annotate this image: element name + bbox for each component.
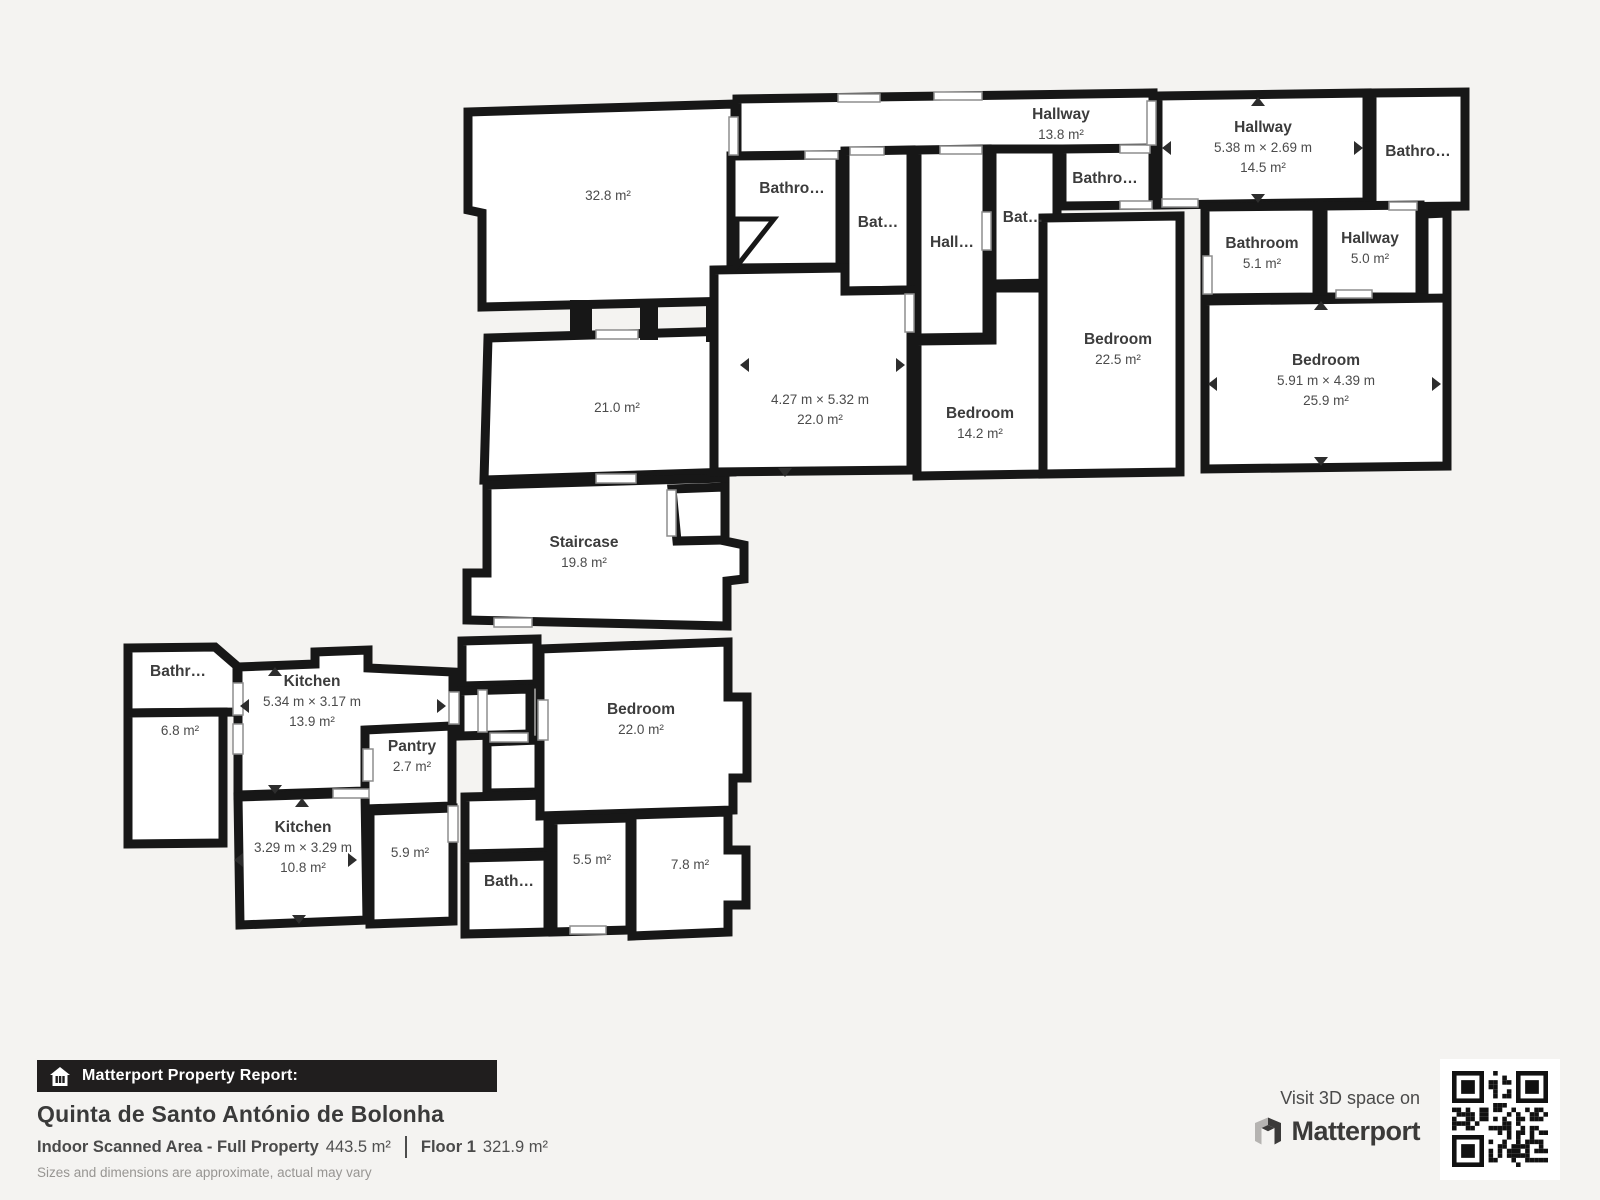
room-label-5-9: 5.9 m² [391,843,429,863]
area-info-line: Indoor Scanned Area - Full Property 443.… [37,1136,548,1158]
scanned-area-value: 443.5 m² [326,1138,391,1157]
property-title: Quinta de Santo António de Bolonha [37,1101,444,1128]
room-label-bathroom-3: Bat… [1003,208,1043,228]
dim-arrow-up-icon [1251,97,1265,106]
room-shape-connector-2 [460,689,530,736]
room-shape-5-5 [553,818,630,932]
qr-code [1440,1059,1560,1180]
matterport-brand-row: Matterport [1020,1115,1420,1147]
wall-stub [706,302,718,342]
dim-arrow-right-icon [437,699,446,713]
room-label-6-8: 6.8 m² [161,721,199,741]
room-label-21-0: 21.0 m² [594,398,640,418]
room-label-22-0: 4.27 m × 5.32 m 22.0 m² [771,390,869,430]
room-shape-connector-1 [462,639,537,686]
floor-label: Floor 1 [421,1138,476,1157]
dim-arrow-right-icon [896,358,905,372]
dim-arrow-down-icon [778,468,792,477]
visit-3d-text: Visit 3D space on [1020,1088,1420,1109]
room-label-bedroom-25-9: Bedroom 5.91 m × 4.39 m 25.9 m² [1277,351,1375,411]
wall-stub [570,300,592,338]
room-label-bathroom-5-1: Bathroom 5.1 m² [1225,234,1298,274]
room-label-kitchen-10-8: Kitchen 3.29 m × 3.29 m 10.8 m² [254,818,352,878]
dim-arrow-right-icon [1432,377,1441,391]
dim-arrow-left-icon [1208,377,1217,391]
room-label-bathroom-top-right: Bathro… [1385,142,1450,162]
qr-code-image [1452,1071,1548,1167]
room-label-hallway-top: Hallway 13.8 m² [1032,105,1090,145]
dim-arrow-left-icon [234,853,243,867]
dim-arrow-up-icon [295,798,309,807]
report-bar-label: Matterport Property Report: [82,1067,298,1085]
visit-3d-block: Visit 3D space on Matterport [1020,1088,1420,1147]
room-label-bathroom-2: Bat… [858,213,898,233]
disclaimer-text: Sizes and dimensions are approximate, ac… [37,1165,372,1180]
room-shape-landing [672,487,725,541]
dim-arrow-down-icon [268,785,282,794]
dim-arrow-down-icon [292,915,306,924]
room-label-32-8: 32.8 m² [585,186,631,206]
room-label-bedroom-14-2: Bedroom 14.2 m² [946,404,1014,444]
room-label-7-8: 7.8 m² [671,855,709,875]
wall-stub [640,301,658,340]
room-label-5-5: 5.5 m² [573,850,611,870]
scanned-area-label: Indoor Scanned Area - Full Property [37,1138,319,1157]
dim-arrow-left-icon [1162,141,1171,155]
matterport-wordmark: Matterport [1292,1116,1421,1147]
room-label-hallway-5-0: Hallway 5.0 m² [1341,229,1399,269]
room-label-kitchen-13-9: Kitchen 5.34 m × 3.17 m 13.9 m² [263,672,361,732]
house-icon [50,1067,70,1086]
room-shape-bathroom-bottom [465,856,548,934]
room-label-bedroom-22-5: Bedroom 22.5 m² [1084,330,1152,370]
room-shape-connector-3 [487,740,539,793]
room-label-staircase: Staircase 19.8 m² [550,533,619,573]
dim-arrow-left-icon [740,358,749,372]
dim-arrow-down-icon [1251,194,1265,203]
room-label-hallway-14-5: Hallway 5.38 m × 2.69 m 14.5 m² [1214,118,1312,178]
floor-value: 321.9 m² [483,1138,548,1157]
room-label-bathroom-1: Bathro… [759,179,824,199]
matterport-logo-icon [1252,1115,1284,1147]
room-label-bathroom-bottom-left: Bathr… [150,662,206,682]
dim-arrow-down-icon [1314,457,1328,466]
dim-arrow-right-icon [1354,141,1363,155]
room-shape-nook [1424,213,1447,300]
room-label-bathroom-4: Bathro… [1072,169,1137,189]
dim-arrow-left-icon [240,699,249,713]
matterport-floorplan-report: Hallway 13.8 m² 32.8 m² 21.0 m² Staircas… [0,0,1600,1200]
divider [405,1136,407,1158]
room-label-bathroom-bottom: Bath… [484,872,534,892]
room-label-pantry: Pantry 2.7 m² [388,737,436,777]
room-shape-5-9 [370,808,453,924]
room-label-hallway-inner: Hall… [930,233,974,253]
dim-arrow-up-icon [1314,301,1328,310]
room-label-bedroom-22-0: Bedroom 22.0 m² [607,700,675,740]
report-header-bar: Matterport Property Report: [37,1060,497,1092]
